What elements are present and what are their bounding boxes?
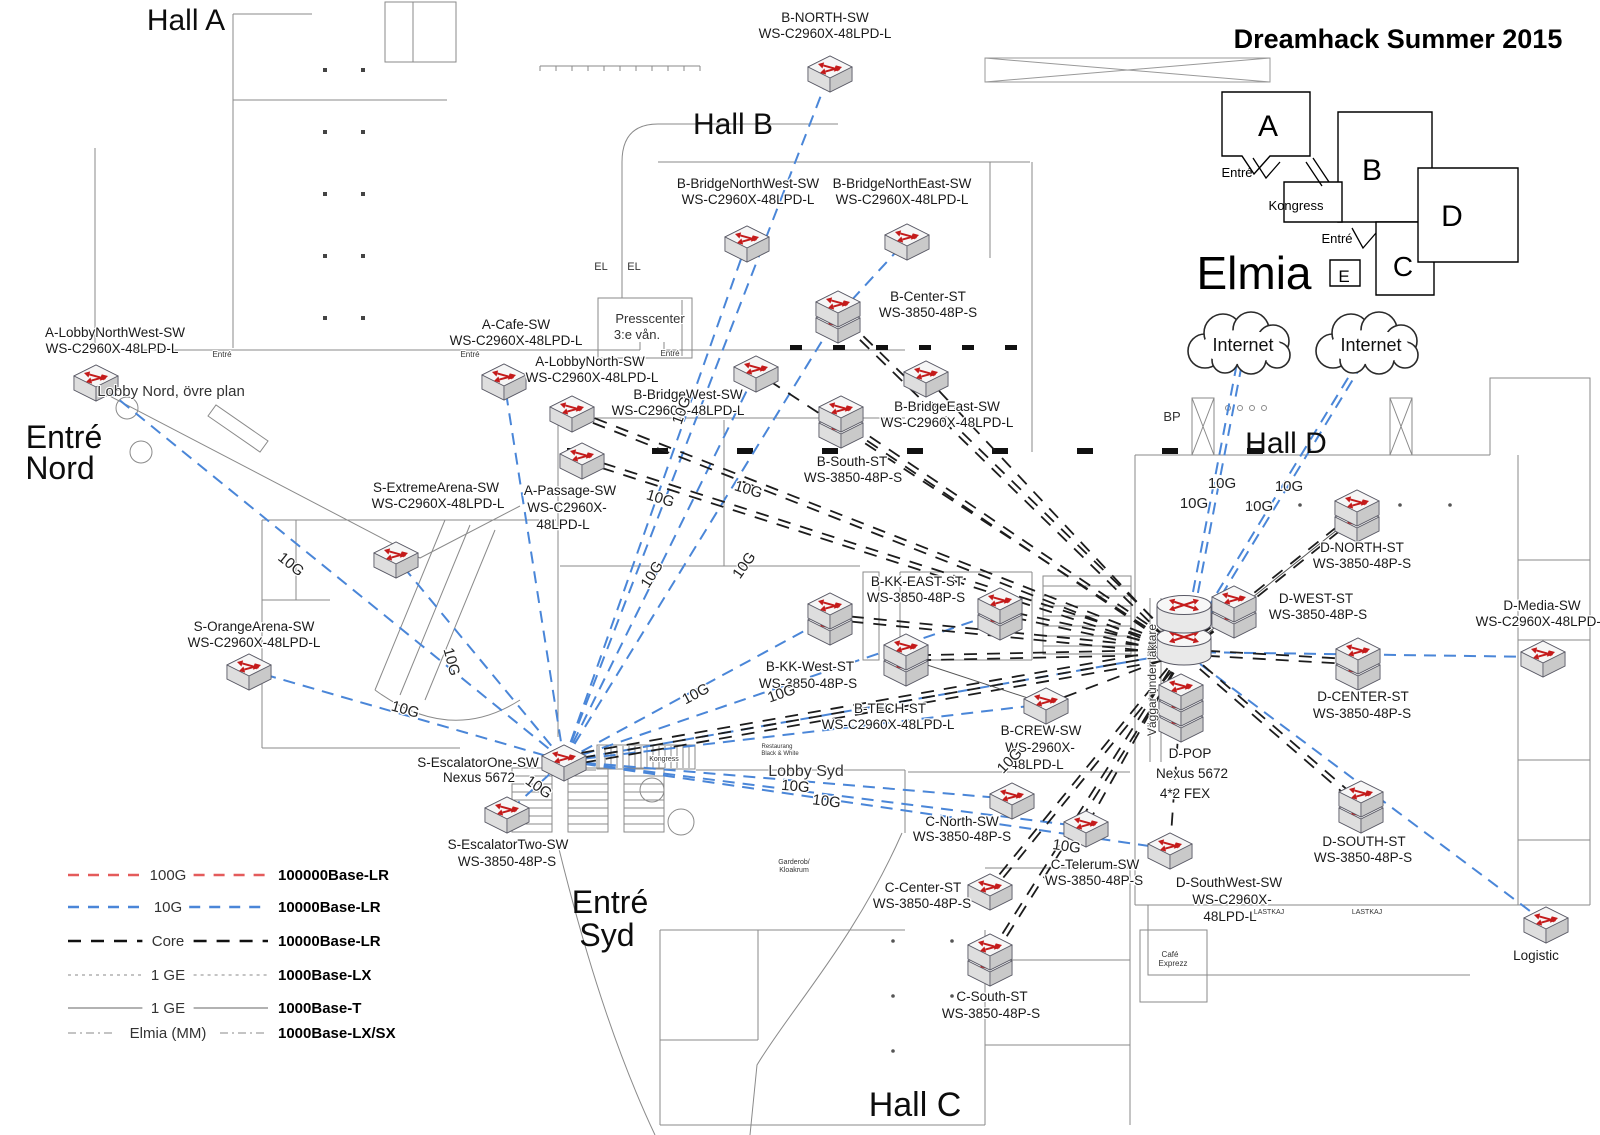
inset-hall-letter: C	[1393, 251, 1413, 282]
inset-hall-letter: E	[1338, 267, 1349, 286]
switch-icon	[227, 654, 271, 690]
node-label: B-BridgeNorthWest-SW	[677, 176, 820, 191]
floorplan-label: Entré	[460, 350, 480, 359]
node-A-LN	[550, 396, 594, 432]
link-g10-S-E1-S-Ext	[396, 558, 564, 761]
inset-label: Entré	[1221, 165, 1252, 180]
switch-icon	[1024, 688, 1068, 724]
node-label: WS-3850-48P-S	[867, 590, 965, 605]
floorplan-label: EL	[594, 261, 607, 273]
link-speed-label: 10G	[274, 549, 307, 580]
link-speed-label: 10G	[1051, 836, 1081, 857]
node-D-Med	[1521, 641, 1565, 677]
node-B-BNW	[725, 226, 769, 262]
elmia-title: Elmia	[1196, 247, 1311, 299]
node-label: WS-3850-48P-S	[804, 470, 902, 485]
node-B-N	[808, 56, 852, 92]
inset-label: Entré	[1321, 231, 1352, 246]
floorplan-label: Restaurang	[761, 744, 792, 750]
node-label: WS-C2960X-48LPD-L	[372, 496, 505, 511]
node-label: B-TECH-ST	[854, 701, 926, 716]
floorplan-label: Garderob/	[778, 859, 810, 866]
node-label: D-Media-SW	[1503, 598, 1581, 613]
node-D-Ctr	[1336, 638, 1380, 690]
floorplan-label: EL	[627, 261, 640, 273]
node-label: B-KK-West-ST	[766, 659, 854, 674]
node-D-S	[1339, 781, 1383, 833]
node-label: WS-C2960X-48LPD-L	[1476, 614, 1600, 629]
floorplan-label: Kongress	[649, 756, 679, 763]
node-label: WS-C2960X-48LPD-L	[46, 341, 179, 356]
node-label: WS-3850-48P-S	[873, 896, 971, 911]
node-B-S	[819, 396, 863, 448]
node-label: C-South-ST	[956, 989, 1027, 1004]
switch-icon	[485, 797, 529, 833]
hall-name: Hall D	[1245, 427, 1327, 460]
node-label: Logistic	[1513, 948, 1559, 963]
node-label: WS-3850-48P-S	[1313, 706, 1411, 721]
node-B-BE	[904, 361, 948, 397]
switch-icon	[550, 396, 594, 432]
inset-hall-letter: D	[1441, 200, 1463, 233]
node-label: Nexus 5672	[1156, 766, 1228, 781]
node-label: Nexus 5672	[443, 770, 515, 785]
node-S-Org	[227, 654, 271, 690]
node-label: WS-3850-48P-S	[942, 1006, 1040, 1021]
floorplan-label: Lobby Nord, övre plan	[97, 383, 245, 400]
node-label: Internet	[1340, 335, 1401, 355]
node-label: B-KK-EAST-ST	[871, 574, 963, 589]
switch-icon	[1148, 833, 1192, 869]
node-label: D-CENTER-ST	[1317, 689, 1409, 704]
link-g10-S-E1-B-Crew	[564, 704, 1046, 761]
floorplan-label: Kloakrum	[779, 867, 809, 874]
node-C-Ctr	[968, 874, 1012, 910]
node-S-E2	[485, 797, 529, 833]
node-label: B-NORTH-SW	[781, 10, 869, 25]
link-core-D-POP-B-T	[906, 650, 1184, 656]
legend-media-label: 10000Base-LR	[278, 899, 381, 916]
switch-icon	[1521, 641, 1565, 677]
link-speed-label: 10G	[1208, 475, 1236, 492]
legend-line-label: 10G	[154, 899, 182, 916]
node-B-BNE	[885, 224, 929, 260]
legend-media-label: 1000Base-LX	[278, 967, 371, 984]
page-title: Dreamhack Summer 2015	[1234, 24, 1563, 54]
node-D-POP	[1157, 596, 1211, 743]
node-label: WS-3850-48P-S	[1313, 556, 1411, 571]
link-speed-label: 10G	[1245, 498, 1273, 515]
link-g10-S-E1-A-LNW	[96, 381, 564, 761]
node-B-T	[884, 634, 928, 686]
node-label: B-BridgeNorthEast-SW	[833, 176, 972, 191]
node-label: WS-3850-48P-S	[1045, 873, 1143, 888]
legend-line-label: 100G	[150, 867, 187, 884]
node-label: D-SOUTH-ST	[1322, 834, 1405, 849]
network-floorplan-page: ABCDEEntréKongressEntréA-LobbyNorthWest-…	[0, 0, 1600, 1135]
node-label: 48LPD-L	[1203, 909, 1257, 924]
link-speed-label: 10G	[1180, 495, 1208, 512]
node-label: WS-C2960X-48LPD-L	[759, 26, 892, 41]
node-label: WS-C2960X-48LPD-L	[450, 333, 583, 348]
node-B-KKE	[978, 588, 1022, 640]
node-label: WS-3850-48P-S	[458, 854, 556, 869]
legend-media-label: 1000Base-T	[278, 1000, 361, 1017]
link-speed-label: 10G	[729, 549, 759, 582]
node-Log	[1524, 907, 1568, 943]
node-label: WS-C2960X-	[527, 500, 607, 515]
node-B-Crew	[1024, 688, 1068, 724]
node-D-SW	[1148, 833, 1192, 869]
node-label: B-Center-ST	[890, 289, 966, 304]
node-label: A-Passage-SW	[524, 483, 617, 498]
node-C-S	[968, 934, 1012, 986]
node-label: C-Center-ST	[885, 880, 962, 895]
node-S-Ext	[374, 542, 418, 578]
node-label: S-OrangeArena-SW	[194, 619, 315, 634]
floorplan-label: Lobby Syd	[768, 763, 844, 780]
network-map-svg: ABCDEEntréKongressEntréA-LobbyNorthWest-…	[0, 0, 1600, 1135]
link-speed-label: 10G	[389, 698, 421, 722]
link-speed-label: 10G	[732, 477, 764, 502]
link-speed-label: 10G	[1275, 478, 1303, 495]
switch-icon	[808, 56, 852, 92]
node-label: WS-C2960X-48LPD-L	[822, 717, 955, 732]
node-label: WS-C2960X-48LPD-L	[682, 192, 815, 207]
floorplan-label: Väggar under läktare	[1145, 624, 1159, 736]
node-label: WS-C2960X-48LPD-L	[188, 635, 321, 650]
hall-name: Hall C	[869, 1086, 962, 1124]
node-label: D-POP	[1169, 746, 1212, 761]
node-A-Cafe	[482, 364, 526, 400]
link-speed-label: 10G	[439, 646, 463, 678]
node-D-N	[1335, 490, 1379, 542]
inset-hall-letter: A	[1258, 110, 1278, 143]
legend: 100G100000Base-LR10G10000Base-LRCore1000…	[68, 867, 396, 1042]
hall-name: Syd	[579, 917, 634, 953]
switch-icon	[1524, 907, 1568, 943]
switch-icon	[725, 226, 769, 262]
hall-name: Hall B	[693, 108, 773, 141]
node-label: S-EscalatorTwo-SW	[448, 837, 569, 852]
router-icon	[1157, 596, 1211, 634]
node-label: WS-C2960X-48LPD-L	[881, 415, 1014, 430]
legend-media-label: 10000Base-LR	[278, 933, 381, 950]
legend-line-label: Core	[152, 933, 185, 950]
node-D-W	[1212, 586, 1256, 638]
node-label: C-Telerum-SW	[1051, 857, 1140, 872]
node-label: 4*2 FEX	[1160, 786, 1210, 801]
node-label: D-WEST-ST	[1279, 591, 1353, 606]
floorplan-label: Exprezz	[1159, 959, 1188, 968]
node-label: B-BridgeEast-SW	[894, 399, 1000, 414]
node-label: S-ExtremeArena-SW	[373, 480, 499, 495]
link-speed-label: 10G	[522, 772, 555, 802]
node-label: A-LobbyNorth-SW	[535, 354, 645, 369]
hall-name: Nord	[25, 450, 94, 486]
node-label: WS-C2960X-	[1192, 892, 1272, 907]
switch-icon	[885, 224, 929, 260]
node-A-Pass	[560, 443, 604, 479]
inset-hall-letter: B	[1362, 154, 1382, 187]
link-core-D-POP-D-S	[1182, 654, 1359, 807]
node-label: B-CREW-SW	[1001, 723, 1082, 738]
node-label: S-EscalatorOne-SW	[417, 755, 539, 770]
legend-media-label: 1000Base-LX/SX	[278, 1025, 396, 1042]
legend-media-label: 100000Base-LR	[278, 867, 389, 884]
switch-icon	[560, 443, 604, 479]
node-label: WS-3850-48P-S	[879, 305, 977, 320]
node-label: B-South-ST	[817, 454, 888, 469]
link-speed-label: 10G	[811, 791, 841, 811]
link-sol-D-POP-D-N	[1184, 514, 1357, 652]
floorplan-label: LASTKAJ	[1352, 909, 1382, 916]
switch-icon	[374, 542, 418, 578]
node-B-KKW	[808, 593, 852, 645]
floorplan-label: 3:e vån.	[614, 327, 660, 342]
hall-name: Entré	[572, 884, 648, 920]
node-label: WS-3850-48P-S	[1269, 607, 1367, 622]
switch-icon	[904, 361, 948, 397]
legend-line-label: 1 GE	[151, 1000, 185, 1017]
node-label: WS-3850-48P-S	[1314, 850, 1412, 865]
floorplan-label: LASTKAJ	[1254, 909, 1284, 916]
switch-icon	[482, 364, 526, 400]
node-label: WS-3850-48P-S	[913, 829, 1011, 844]
hall-name: Hall A	[147, 4, 225, 37]
node-label: A-Cafe-SW	[482, 317, 551, 332]
node-B-Ctr	[816, 291, 860, 343]
floorplan-label: BP	[1163, 409, 1180, 424]
node-label: C-North-SW	[925, 814, 999, 829]
floorplan-label: Entré	[660, 349, 680, 358]
node-label: WS-C2960X-48LPD-L	[836, 192, 969, 207]
floorplan-label: Café	[1162, 950, 1179, 959]
floorplan-label: Entré	[212, 350, 232, 359]
inset-label: Kongress	[1269, 198, 1324, 213]
floorplan-label: Presscenter	[615, 311, 685, 326]
legend-line-label: 1 GE	[151, 967, 185, 984]
legend-line-label: Elmia (MM)	[130, 1025, 207, 1042]
node-label: WS-C2960X-48LPD-L	[526, 370, 659, 385]
node-label: 48LPD-L	[536, 517, 590, 532]
node-label: A-LobbyNorthWest-SW	[45, 325, 185, 340]
node-label: Internet	[1212, 335, 1273, 355]
node-label: D-NORTH-ST	[1320, 540, 1404, 555]
node-label: D-SouthWest-SW	[1176, 875, 1283, 890]
switch-icon	[968, 874, 1012, 910]
floorplan-label: Black & White	[761, 751, 799, 757]
